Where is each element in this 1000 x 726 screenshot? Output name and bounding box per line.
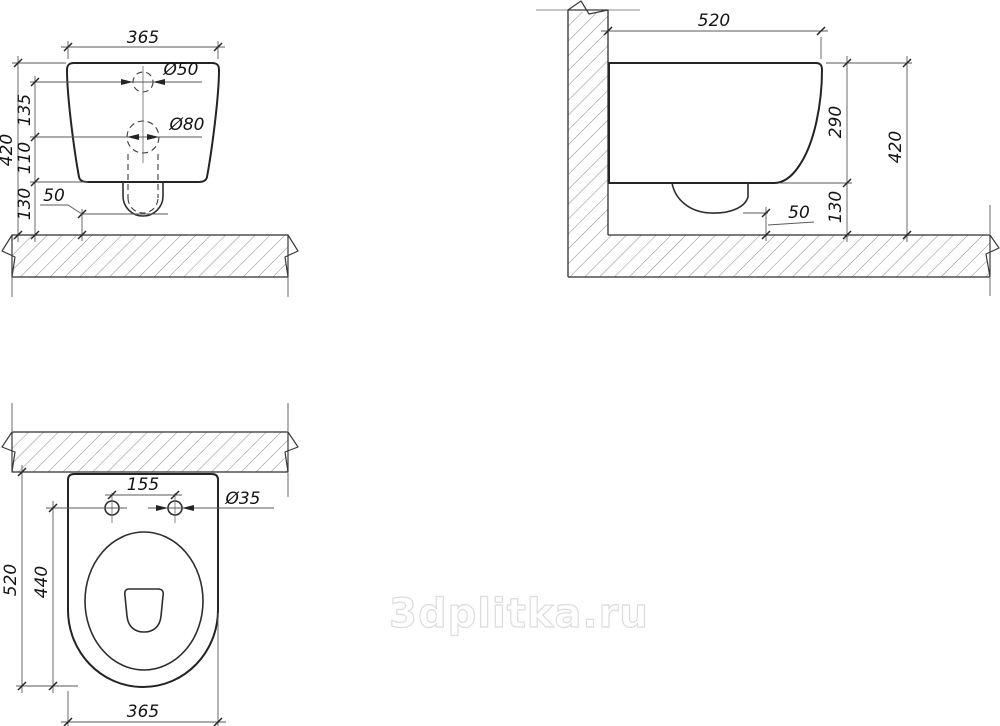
watermark-text: 3dplitka.ru (389, 591, 649, 637)
dim-plan-bolt-spacing: 155 (127, 475, 159, 495)
side-view: 520 290 130 420 50 (536, 1, 999, 296)
dim-front-hole50: Ø50 (162, 60, 198, 80)
dim-front-130: 130 (15, 188, 35, 220)
dim-plan-440: 440 (32, 566, 52, 598)
toilet-dimension-drawing: 365 420 135 110 130 50 Ø50 (0, 0, 1000, 726)
dim-plan-depth: 520 (1, 564, 21, 596)
dim-side-depth: 520 (698, 11, 730, 31)
dim-front-outlet-gap: 50 (43, 186, 65, 206)
side-outlet-bump (672, 183, 748, 213)
dim-side-floor-gap: 130 (826, 191, 846, 223)
technical-drawing-page: 365 420 135 110 130 50 Ø50 (0, 0, 1000, 726)
front-floor-slab (2, 235, 298, 297)
plan-wall-hatch (12, 432, 288, 472)
side-body-outline (609, 63, 822, 183)
front-view: 365 420 135 110 130 50 Ø50 (0, 28, 298, 297)
dim-front-135: 135 (15, 94, 35, 126)
plan-body-outline (68, 474, 218, 687)
dim-plan-width: 365 (127, 702, 159, 722)
dim-side-body-height: 290 (826, 106, 846, 138)
dim-side-overall-height: 420 (886, 131, 906, 163)
dim-front-width: 365 (127, 28, 159, 48)
dim-front-110: 110 (15, 142, 35, 174)
dim-side-outlet-gap: 50 (788, 203, 810, 223)
dim-plan-bolt-dia: Ø35 (224, 489, 260, 509)
dim-front-hole80: Ø80 (168, 115, 204, 135)
plan-view: 155 Ø35 520 440 365 (1, 403, 298, 726)
front-floor-hatch (12, 235, 288, 277)
